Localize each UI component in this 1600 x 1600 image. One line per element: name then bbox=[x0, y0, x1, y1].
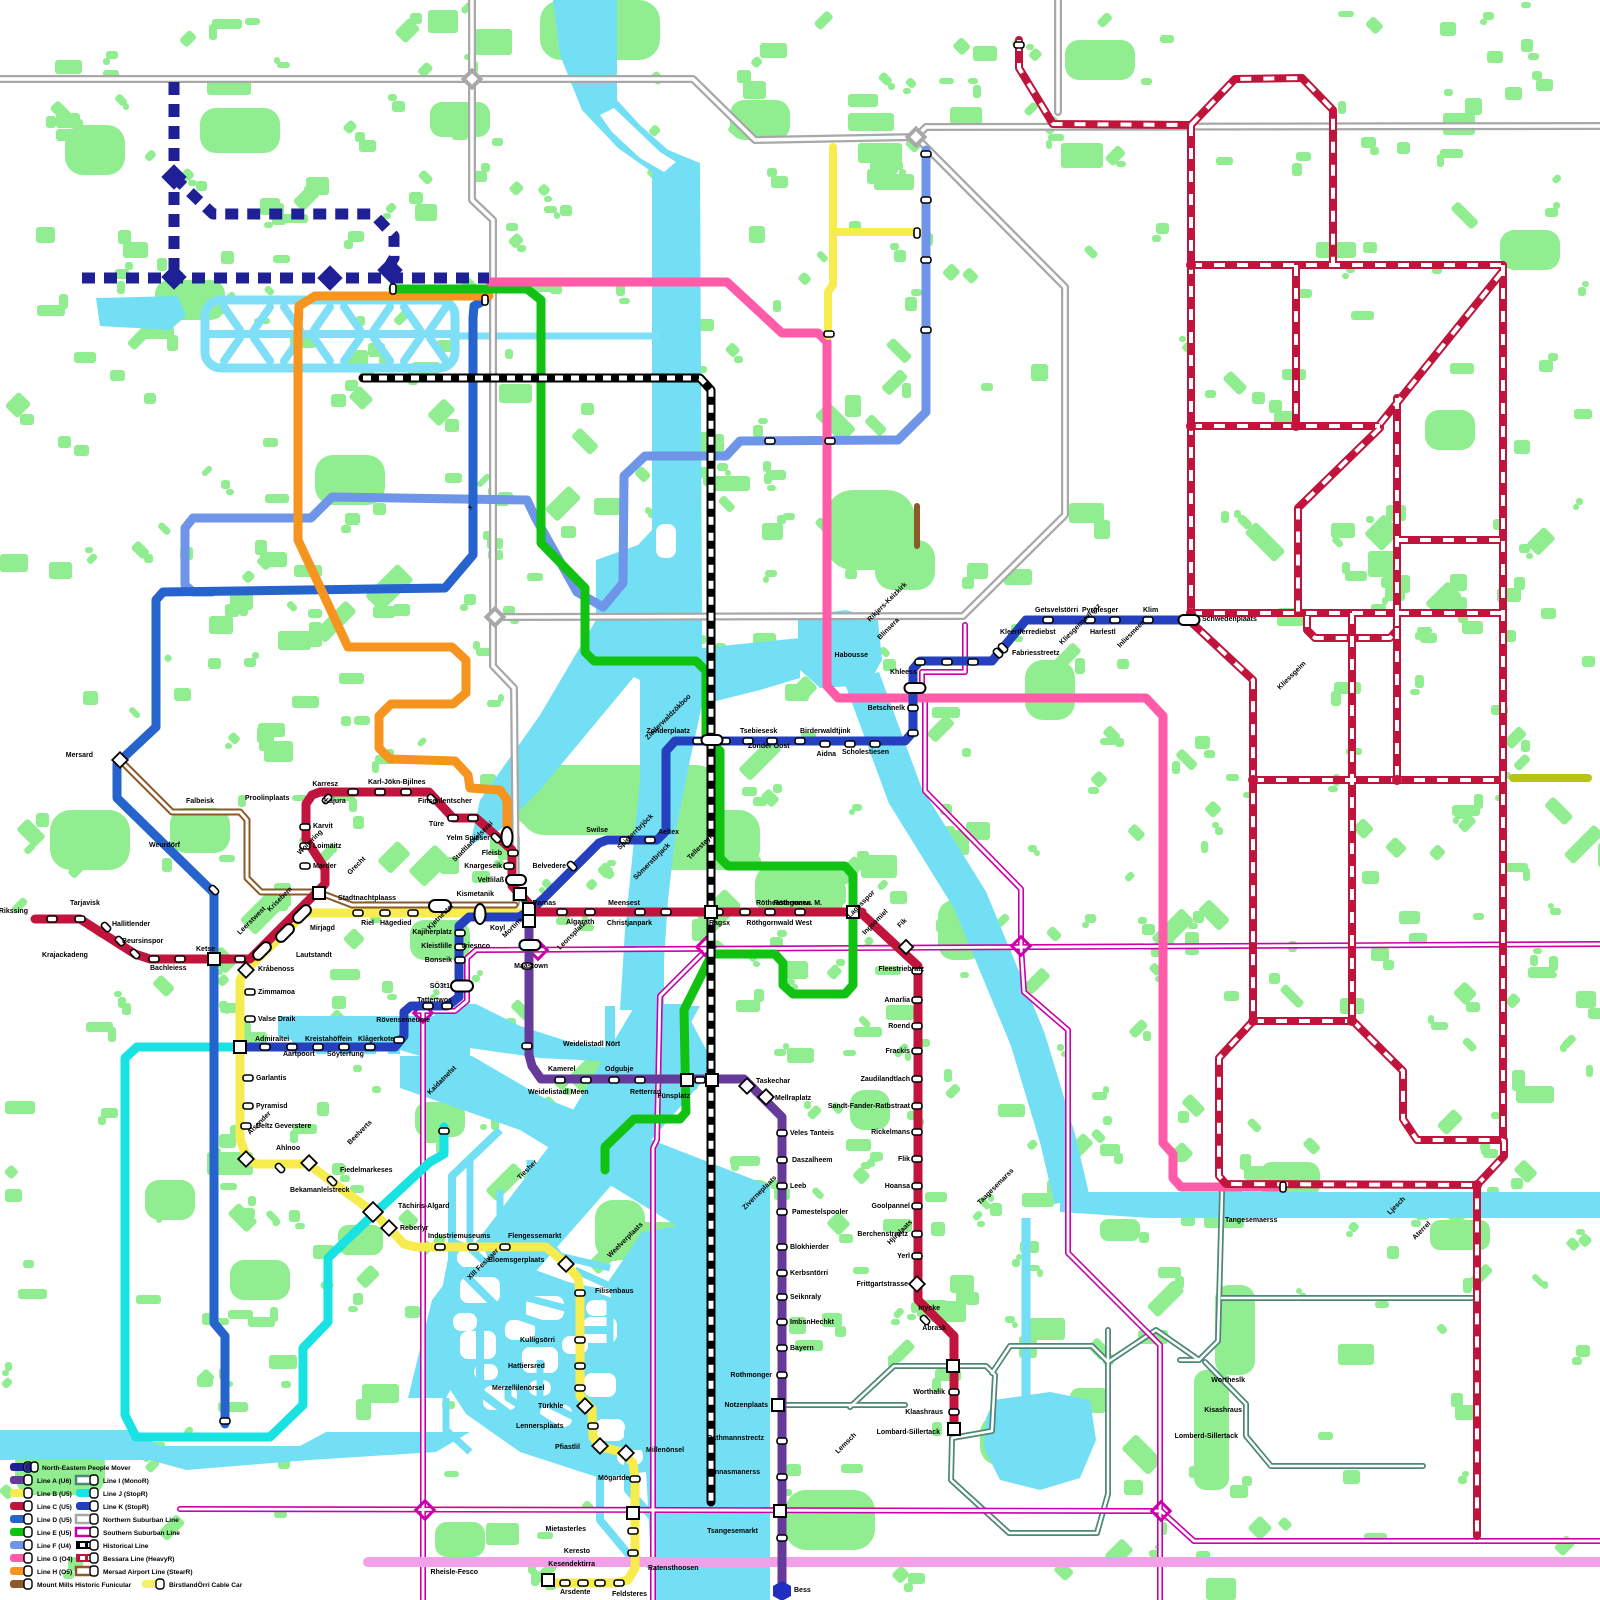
svg-text:Mögartde: Mögartde bbox=[598, 1475, 630, 1482]
svg-text:Lennersplaats: Lennersplaats bbox=[516, 1423, 564, 1430]
svg-text:Admiraltei: Admiraltei bbox=[255, 1036, 289, 1043]
svg-text:SÖ3t1: SÖ3t1 bbox=[430, 981, 450, 990]
svg-text:Karvit: Karvit bbox=[313, 823, 334, 830]
svg-text:Abrask: Abrask bbox=[922, 1325, 946, 1332]
svg-text:Sandt-Fander-Ratbstraat: Sandt-Fander-Ratbstraat bbox=[828, 1103, 911, 1110]
svg-text:Türkhle: Türkhle bbox=[538, 1403, 563, 1410]
svg-text:Rikssing: Rikssing bbox=[0, 908, 28, 915]
svg-text:Fiedelmarkeses: Fiedelmarkeses bbox=[340, 1167, 393, 1174]
svg-text:Weurdörf: Weurdörf bbox=[149, 842, 181, 849]
svg-text:Kleeriferrediebst: Kleeriferrediebst bbox=[1000, 629, 1056, 636]
svg-text:Türe: Türe bbox=[429, 821, 444, 828]
svg-text:Klim: Klim bbox=[1143, 607, 1158, 614]
svg-text:Parnas: Parnas bbox=[533, 900, 556, 907]
svg-text:Line J (StopR): Line J (StopR) bbox=[103, 1491, 148, 1498]
svg-text:Kerbsntörri: Kerbsntörri bbox=[790, 1270, 828, 1277]
svg-text:Rövensemeume: Rövensemeume bbox=[376, 1017, 430, 1024]
svg-text:Line H (O5): Line H (O5) bbox=[37, 1569, 72, 1576]
svg-text:Weidelistadl Nört: Weidelistadl Nört bbox=[563, 1041, 621, 1048]
svg-text:Worthalik: Worthalik bbox=[913, 1389, 945, 1396]
svg-text:Harlestl: Harlestl bbox=[1090, 629, 1116, 636]
svg-text:Feldsteres: Feldsteres bbox=[612, 1591, 647, 1598]
svg-text:Falbeisk: Falbeisk bbox=[186, 798, 214, 805]
svg-text:Rheisle-Fesco: Rheisle-Fesco bbox=[431, 1569, 478, 1576]
svg-text:Tsebiesesk: Tsebiesesk bbox=[740, 728, 777, 735]
svg-text:Lombard-Sillertack: Lombard-Sillertack bbox=[877, 1429, 941, 1436]
svg-text:Maastown: Maastown bbox=[514, 963, 548, 970]
svg-text:Blokhierder: Blokhierder bbox=[790, 1244, 829, 1251]
svg-text:Yerl: Yerl bbox=[897, 1253, 910, 1260]
svg-text:Scholestiesen: Scholestiesen bbox=[842, 749, 889, 756]
svg-text:Vriesnco: Vriesnco bbox=[461, 943, 490, 950]
svg-text:Garlantis: Garlantis bbox=[256, 1075, 286, 1082]
svg-text:Hoansa: Hoansa bbox=[885, 1183, 910, 1190]
svg-text:Amarlia: Amarlia bbox=[884, 997, 910, 1004]
svg-text:Kråbenoss: Kråbenoss bbox=[258, 965, 294, 973]
svg-text:Kleistlille: Kleistlille bbox=[421, 943, 452, 950]
svg-text:Riel: Riel bbox=[361, 920, 374, 927]
svg-text:Bekamanlelstreck: Bekamanlelstreck bbox=[290, 1187, 350, 1194]
svg-text:Line C (U5): Line C (U5) bbox=[37, 1504, 72, 1511]
svg-text:Mirjagd: Mirjagd bbox=[310, 925, 335, 932]
svg-text:Ketse: Ketse bbox=[196, 946, 215, 953]
svg-text:Line E (U5): Line E (U5) bbox=[37, 1530, 71, 1537]
svg-text:Ragsx: Ragsx bbox=[709, 920, 730, 927]
svg-text:Line A (U6): Line A (U6) bbox=[37, 1478, 71, 1485]
svg-text:Kulligsörri: Kulligsörri bbox=[520, 1337, 555, 1344]
svg-text:Fleestriebratz: Fleestriebratz bbox=[878, 966, 924, 973]
svg-text:Khleess: Khleess bbox=[890, 669, 917, 676]
svg-text:Kismetanik: Kismetanik bbox=[457, 891, 494, 898]
svg-text:North-Eastern People Mover: North-Eastern People Mover bbox=[42, 1465, 131, 1472]
svg-text:Karresz: Karresz bbox=[312, 781, 338, 788]
svg-text:Mellraplatz: Mellraplatz bbox=[775, 1095, 812, 1102]
svg-text:Inycke: Inycke bbox=[918, 1305, 940, 1312]
svg-text:Line F (U4): Line F (U4) bbox=[37, 1543, 71, 1550]
svg-text:Bonseik: Bonseik bbox=[425, 957, 452, 964]
svg-text:Schwedenplaats: Schwedenplaats bbox=[1202, 616, 1257, 623]
svg-text:Klaashraus: Klaashraus bbox=[905, 1409, 943, 1416]
svg-text:Line D (U5): Line D (U5) bbox=[37, 1517, 72, 1524]
svg-text:Weidelistadl Meen: Weidelistadl Meen bbox=[528, 1089, 589, 1096]
svg-text:Tattertwos: Tattertwos bbox=[417, 997, 452, 1004]
svg-text:Millenönsel: Millenönsel bbox=[646, 1447, 684, 1454]
svg-text:Taskechar: Taskechar bbox=[756, 1078, 790, 1085]
svg-text:Veles Tanteis: Veles Tanteis bbox=[790, 1130, 834, 1137]
svg-text:BirstlandÖrri Cable Car: BirstlandÖrri Cable Car bbox=[169, 1580, 243, 1589]
svg-text:Söyterfung: Söyterfung bbox=[327, 1051, 364, 1058]
svg-text:Kamerel: Kamerel bbox=[548, 1066, 576, 1073]
svg-text:Hägedied: Hägedied bbox=[380, 920, 412, 927]
svg-text:Habousse: Habousse bbox=[835, 652, 869, 659]
svg-text:Flengessemarkt: Flengessemarkt bbox=[508, 1233, 562, 1240]
svg-text:Mersad Airport Line (StearR): Mersad Airport Line (StearR) bbox=[103, 1569, 193, 1576]
svg-text:Tsangesemarkt: Tsangesemarkt bbox=[707, 1528, 759, 1535]
svg-text:Mersard: Mersard bbox=[66, 752, 93, 759]
svg-text:Tächiris-Algard: Tächiris-Algard bbox=[398, 1203, 449, 1210]
svg-text:Northern Suburban Line: Northern Suburban Line bbox=[103, 1517, 179, 1524]
svg-text:Bloemsgerplaats: Bloemsgerplaats bbox=[488, 1257, 545, 1264]
svg-text:Flik: Flik bbox=[898, 1156, 910, 1163]
svg-text:Mount Mills Historic Funicular: Mount Mills Historic Funicular bbox=[37, 1582, 132, 1589]
svg-text:Wortheslk: Wortheslk bbox=[1211, 1377, 1245, 1384]
svg-text:Zaudilandtlach: Zaudilandtlach bbox=[861, 1076, 910, 1083]
svg-text:Tarjavisk: Tarjavisk bbox=[70, 900, 100, 907]
svg-text:Zimmamoa: Zimmamoa bbox=[258, 989, 295, 996]
svg-text:Pamestelspooler: Pamestelspooler bbox=[792, 1209, 848, 1216]
svg-text:Christjanpark: Christjanpark bbox=[607, 920, 652, 927]
svg-text:Kreistahöffein: Kreistahöffein bbox=[305, 1036, 352, 1043]
svg-text:Bachleiess: Bachleiess bbox=[150, 965, 187, 972]
svg-text:Birderwaldtjink: Birderwaldtjink bbox=[800, 728, 851, 735]
svg-text:Finsenlentscher: Finsenlentscher bbox=[418, 798, 472, 805]
svg-text:Odgubje: Odgubje bbox=[605, 1066, 633, 1073]
svg-text:Röthgornw. M.: Röthgornw. M. bbox=[774, 900, 822, 907]
svg-text:Beursinspor: Beursinspor bbox=[122, 938, 164, 945]
svg-text:Bayern: Bayern bbox=[790, 1345, 814, 1352]
svg-text:Fleisb: Fleisb bbox=[482, 850, 502, 857]
svg-text:Roend: Roend bbox=[888, 1023, 910, 1030]
svg-text:Kisashraus: Kisashraus bbox=[1204, 1407, 1242, 1414]
svg-text:Leeb: Leeb bbox=[790, 1183, 806, 1190]
svg-text:Pyramisd: Pyramisd bbox=[256, 1103, 288, 1110]
svg-text:Rickelmans: Rickelmans bbox=[871, 1129, 910, 1136]
svg-text:Knargeseik: Knargeseik bbox=[464, 863, 502, 870]
svg-text:Frackis: Frackis bbox=[885, 1048, 910, 1055]
svg-text:Marder: Marder bbox=[313, 863, 337, 870]
svg-text:Stadtnachtplaass: Stadtnachtplaass bbox=[338, 895, 396, 902]
svg-text:Arsdente: Arsdente bbox=[560, 1589, 590, 1596]
svg-text:Hattiersred: Hattiersred bbox=[508, 1363, 545, 1370]
svg-text:Seiknraly: Seiknraly bbox=[790, 1294, 821, 1301]
svg-text:Koyl: Koyl bbox=[490, 925, 505, 932]
svg-text:Fünsplatz: Fünsplatz bbox=[657, 1093, 690, 1100]
svg-text:Pfiastlil: Pfiastlil bbox=[555, 1444, 580, 1451]
svg-text:Zonder Oost: Zonder Oost bbox=[748, 743, 790, 750]
svg-text:Merzellilenörsel: Merzellilenörsel bbox=[492, 1385, 545, 1392]
svg-text:Tangesemaerss: Tangesemaerss bbox=[1225, 1217, 1278, 1224]
svg-text:Meensest: Meensest bbox=[608, 900, 641, 907]
svg-text:Daszalheem: Daszalheem bbox=[792, 1157, 832, 1164]
svg-text:Line K (StopR): Line K (StopR) bbox=[103, 1504, 149, 1511]
svg-text:Swilse: Swilse bbox=[586, 827, 608, 834]
svg-text:Röthgornwald West: Röthgornwald West bbox=[746, 920, 812, 927]
svg-text:Veltlilaß: Veltlilaß bbox=[478, 877, 505, 884]
svg-text:Historical Line: Historical Line bbox=[103, 1543, 149, 1550]
svg-text:Kajura: Kajura bbox=[324, 798, 346, 805]
svg-text:Deltz Geverstere: Deltz Geverstere bbox=[256, 1123, 311, 1130]
svg-text:Rothmonger: Rothmonger bbox=[730, 1372, 772, 1379]
svg-text:Lomberd-Sillertack: Lomberd-Sillertack bbox=[1175, 1433, 1239, 1440]
svg-text:Karl-Jökn-Bjilnes: Karl-Jökn-Bjilnes bbox=[368, 779, 426, 786]
svg-text:Belvedere: Belvedere bbox=[533, 863, 567, 870]
svg-text:Filisenbaus: Filisenbaus bbox=[595, 1288, 634, 1295]
svg-text:Line G (O4): Line G (O4) bbox=[37, 1556, 73, 1563]
svg-text:Rathmannstrectz: Rathmannstrectz bbox=[707, 1435, 764, 1442]
svg-text:Betschnelk: Betschnelk bbox=[868, 705, 905, 712]
svg-text:ImbsnHechkt: ImbsnHechkt bbox=[790, 1319, 835, 1326]
svg-text:Hallitlender: Hallitlender bbox=[112, 921, 150, 928]
svg-text:Line B (U5): Line B (U5) bbox=[37, 1491, 72, 1498]
svg-text:Aartpoort: Aartpoort bbox=[283, 1051, 316, 1058]
svg-text:Proolinplaats: Proolinplaats bbox=[245, 795, 289, 802]
svg-text:Southern Suburban Line: Southern Suburban Line bbox=[103, 1530, 180, 1537]
svg-text:Klågerkote: Klågerkote bbox=[358, 1035, 394, 1043]
svg-text:Kesendektirra: Kesendektirra bbox=[548, 1561, 595, 1568]
svg-text:Bess: Bess bbox=[794, 1587, 811, 1594]
svg-text:Zonnasmanerss: Zonnasmanerss bbox=[706, 1469, 760, 1476]
svg-text:Keresto: Keresto bbox=[564, 1548, 590, 1555]
svg-text:Aeltex: Aeltex bbox=[658, 829, 679, 836]
svg-text:Lautstandt: Lautstandt bbox=[296, 952, 332, 959]
svg-text:Mietasterles: Mietasterles bbox=[546, 1526, 587, 1533]
svg-text:Line I (MonoR): Line I (MonoR) bbox=[103, 1478, 149, 1485]
svg-text:Industriemuseums: Industriemuseums bbox=[428, 1233, 490, 1240]
svg-text:Fabriesstreetz: Fabriesstreetz bbox=[1012, 650, 1060, 657]
svg-text:Getsvelstörri: Getsvelstörri bbox=[1035, 607, 1078, 614]
svg-text:Frittgartstrasse: Frittgartstrasse bbox=[857, 1281, 908, 1288]
svg-text:Ahlnoo: Ahlnoo bbox=[276, 1145, 300, 1152]
svg-text:Aidna: Aidna bbox=[817, 751, 837, 758]
svg-text:Valse Draik: Valse Draik bbox=[258, 1016, 295, 1023]
svg-text:Krajackadeng: Krajackadeng bbox=[42, 952, 88, 959]
svg-text:Reberlyr: Reberlyr bbox=[400, 1225, 429, 1232]
svg-text:Notzenplaats: Notzenplaats bbox=[724, 1402, 768, 1409]
svg-text:Ratensthoosen: Ratensthoosen bbox=[648, 1565, 699, 1572]
svg-text:Bessara Line (HeavyR): Bessara Line (HeavyR) bbox=[103, 1556, 174, 1563]
svg-text:Loimäitz: Loimäitz bbox=[313, 843, 342, 850]
svg-text:Goolpannel: Goolpannel bbox=[872, 1203, 911, 1210]
